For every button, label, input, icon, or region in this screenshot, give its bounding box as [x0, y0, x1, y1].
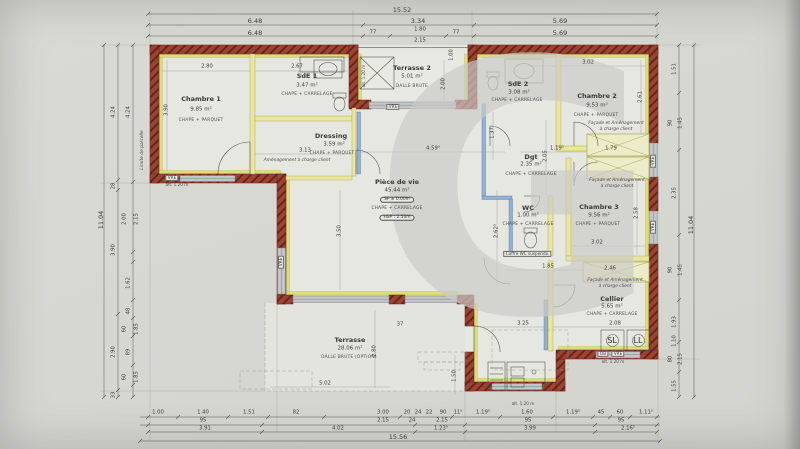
- room-name-chambre1: Chambre 1: [181, 96, 221, 103]
- total-height-dim: 11.04: [688, 216, 695, 235]
- interior-dim: 3.13: [299, 148, 311, 153]
- interior-dim: 1.85: [542, 264, 554, 269]
- room-area: 5.65 m²: [601, 304, 623, 310]
- window-label: VRE: [611, 351, 624, 357]
- room-finish: CHAPE + CARRELAGE: [371, 207, 422, 211]
- interior-dim: 3.90: [164, 104, 169, 116]
- chain-dim: 3.91: [199, 426, 211, 431]
- chain-dim: 77: [453, 30, 460, 35]
- chain-dim: 2.15: [134, 213, 139, 225]
- chain-dim: 2.15: [678, 353, 683, 365]
- room-area: 2.35 m²: [520, 162, 542, 168]
- chain-dim: 1.45: [678, 264, 683, 276]
- window-label: VRE: [650, 154, 656, 167]
- room-area: 9.53 m²: [586, 103, 608, 109]
- window-label: VRE: [278, 255, 284, 268]
- chain-dim: 89: [126, 349, 131, 356]
- appliance-label: LL: [634, 337, 643, 345]
- room-name-piece-de-vie: Pièce de vie: [375, 179, 419, 186]
- chain-dim: 1.23⁵: [434, 426, 448, 431]
- altitude-label: alt. 1.20 m: [166, 183, 189, 187]
- total-width-dim: 15.52: [393, 7, 412, 14]
- window-label: OB: [597, 351, 608, 357]
- room-area: 9.56 m²: [588, 213, 610, 219]
- parcel-limit-note: Limite de parcelle: [141, 130, 145, 169]
- chain-dim: 1.60: [521, 410, 533, 415]
- interior-dim: 2.58: [634, 207, 639, 219]
- client-facade-note: à charge client: [601, 185, 634, 189]
- room-name-dressing: Dressing: [315, 133, 347, 140]
- chain-dim: 2.15: [414, 38, 426, 43]
- room-finish: CHAPE + CARRELAGE: [586, 313, 637, 317]
- window-label: VRE: [165, 175, 178, 181]
- chain-dim: 90: [668, 120, 673, 127]
- interior-dim: 3.02: [582, 60, 594, 65]
- chain-dim: 1.19⁵: [476, 410, 490, 415]
- interior-dim: 1.79: [605, 146, 617, 151]
- chain-dim: 20: [404, 410, 411, 415]
- altitude-label: alt. 1.20 m: [602, 360, 625, 364]
- room-finish: CHAPE + CARRELAGE: [491, 99, 542, 103]
- chain-dim: 1.19⁵: [566, 410, 580, 415]
- chain-dim: 1.62: [126, 277, 131, 289]
- room-finish: DALLE BRUTE: [396, 85, 428, 89]
- room-name-wc: WC: [522, 205, 534, 212]
- chain-dim: 4.02: [332, 426, 344, 431]
- total-height-dim: 11.04: [98, 211, 105, 230]
- interior-dim: 5.02: [319, 381, 331, 386]
- altitude-label: alt. 1.20 m: [512, 402, 535, 406]
- room-name-cellier: Cellier: [600, 296, 623, 303]
- client-facade-note: Façade et Aménagement: [587, 279, 642, 283]
- interior-dim: 3.02: [591, 240, 603, 245]
- interior-dim: 2.05: [543, 150, 548, 162]
- room-area: 5.01 m²: [401, 74, 423, 80]
- client-facade-note: à charge client: [600, 128, 633, 132]
- interior-dim: 4.59⁵: [426, 146, 440, 151]
- room-name-sde2: SdE 2: [508, 81, 529, 88]
- interior-dim: 3.25: [517, 321, 529, 326]
- chain-dim: 2.35: [672, 187, 677, 199]
- client-facade-note: Façade et Aménagement: [589, 179, 644, 183]
- chain-dim: 1.51: [672, 63, 677, 75]
- chain-dim: 60: [122, 326, 127, 333]
- interior-dim: 2.08: [609, 321, 621, 326]
- room-area: 3.08 m²: [508, 90, 530, 96]
- room-name-terrasse2: Terrasse 2: [393, 65, 431, 72]
- chain-dim: 24: [415, 410, 422, 415]
- room-finish: CHAPE + PARQUET: [179, 119, 224, 123]
- room-finish: CHAPE + PARQUET: [574, 114, 619, 118]
- room-name-chambre2: Chambre 2: [577, 93, 617, 100]
- chain-dim: 4.24: [126, 106, 131, 118]
- interior-dim: 2.46: [604, 266, 616, 271]
- chain-dim: 33: [111, 392, 116, 399]
- room-finish: CHAPE + CARRELAGE: [502, 223, 553, 227]
- chain-dim: 48: [126, 308, 131, 315]
- chain-dim: 60: [122, 374, 127, 381]
- scanned-floor-plan-photo: G Chambre 19.85 m²CHAPE + PARQUETSdE 13.…: [0, 0, 800, 449]
- room-finish: DALLE BRUTE (OPTION): [321, 356, 377, 360]
- interior-dim: 2.67: [291, 64, 303, 69]
- chain-dim: 95: [618, 418, 625, 423]
- chain-dim: 5.69: [553, 30, 567, 37]
- altitude-label: alt. 1.20 m: [362, 65, 366, 88]
- chain-dim: 2.00: [122, 213, 127, 225]
- room-finish: CHAPE + PARQUET: [576, 223, 621, 227]
- room-area: 28.06 m²: [337, 346, 362, 352]
- chain-dim: 1.85: [134, 323, 139, 335]
- appliance-label: SL: [607, 337, 617, 345]
- chain-dim: 1.00: [152, 410, 164, 415]
- room-area: 1.00 m²: [517, 213, 539, 219]
- chain-dim: 11⁵: [454, 410, 463, 415]
- wc-note: Coffre WC suspendu: [503, 251, 551, 257]
- chain-dim: 60: [617, 410, 624, 415]
- room-name-dgt: Dgt: [524, 154, 537, 161]
- room-area: 3.47 m²: [296, 83, 318, 89]
- total-width-dim: 15.56: [389, 434, 408, 441]
- interior-dim: 2.61: [638, 91, 643, 103]
- interior-dim: 2.00: [441, 78, 446, 90]
- interior-dim: 2.80: [372, 345, 377, 357]
- room-area: 3.59 m²: [323, 142, 345, 148]
- chain-dim: 2.16⁵: [621, 426, 635, 431]
- window-label: VRE: [650, 220, 656, 233]
- chain-dim: 5.69: [553, 18, 567, 25]
- chain-dim: 95: [525, 418, 532, 423]
- chain-dim: 45: [598, 410, 605, 415]
- interior-dim: 2.80: [201, 64, 213, 69]
- room-area: 45.44 m²: [384, 188, 409, 194]
- window-label: VRE: [386, 104, 399, 110]
- chain-dim: 4.24: [111, 106, 116, 118]
- room-area: 9.85 m²: [190, 107, 212, 113]
- interior-dim: 1.19⁵: [550, 146, 564, 151]
- chain-dim: 1.55: [672, 380, 677, 392]
- chain-dim: 2.90: [111, 346, 116, 358]
- chain-dim: 1.93: [672, 316, 677, 328]
- chain-dim: 3.90: [111, 244, 116, 256]
- chain-dim: 22: [426, 410, 433, 415]
- chain-dim: 2.15: [377, 418, 389, 423]
- chain-dim: 90: [440, 410, 447, 415]
- client-facade-note: Façade et Aménagement: [588, 122, 643, 126]
- chain-dim: 1.51: [243, 410, 255, 415]
- chain-dim: 6.48: [248, 30, 262, 37]
- chain-dim: 95: [200, 418, 207, 423]
- chain-dim: 1.10: [672, 335, 677, 347]
- room-finish: CHAPE + PARQUET: [310, 152, 355, 156]
- chain-dim: 77: [370, 30, 377, 35]
- chain-dim: 28: [111, 183, 116, 190]
- chain-dim: 24: [409, 418, 416, 423]
- chain-dim: 3.99: [524, 426, 536, 431]
- room-level: SF ± 0.00m: [380, 197, 414, 203]
- chain-dim: 1.45: [678, 117, 683, 129]
- client-note: Aménagement à charge client: [264, 159, 331, 163]
- interior-dim: 2.62⁵: [494, 224, 499, 238]
- chain-dim: 1.40: [197, 410, 209, 415]
- chain-dim: 3.00: [377, 410, 389, 415]
- room-ceiling: HSP : 2.50m: [379, 215, 414, 221]
- chain-dim: 1.80: [414, 27, 426, 32]
- chain-dim: 1.85: [134, 371, 139, 383]
- client-facade-note: à charge client: [599, 285, 632, 289]
- room-name-terrasse: Terrasse: [335, 337, 366, 344]
- chain-dim: 82: [293, 410, 300, 415]
- room-name-sde1: SdE 1: [297, 73, 318, 80]
- room-name-chambre3: Chambre 3: [579, 204, 619, 211]
- chain-dim: 2.15: [436, 418, 448, 423]
- interior-dim: 37: [397, 322, 404, 327]
- room-finish: CHAPE + CARRELAGE: [281, 93, 332, 97]
- chain-dim: 1.11⁵: [639, 410, 653, 415]
- interior-dim: 1.50: [452, 370, 457, 382]
- room-finish: CHAPE + CARRELAGE: [505, 173, 556, 177]
- chain-dim: 90: [668, 267, 673, 274]
- chain-dim: 3.34: [411, 18, 425, 25]
- interior-dim: 1.00: [449, 49, 454, 61]
- interior-dim: 1.37: [490, 127, 495, 139]
- interior-dim: 3.50: [337, 225, 342, 237]
- chain-dim: 6.48: [248, 18, 262, 25]
- chain-dim: 80: [668, 356, 673, 363]
